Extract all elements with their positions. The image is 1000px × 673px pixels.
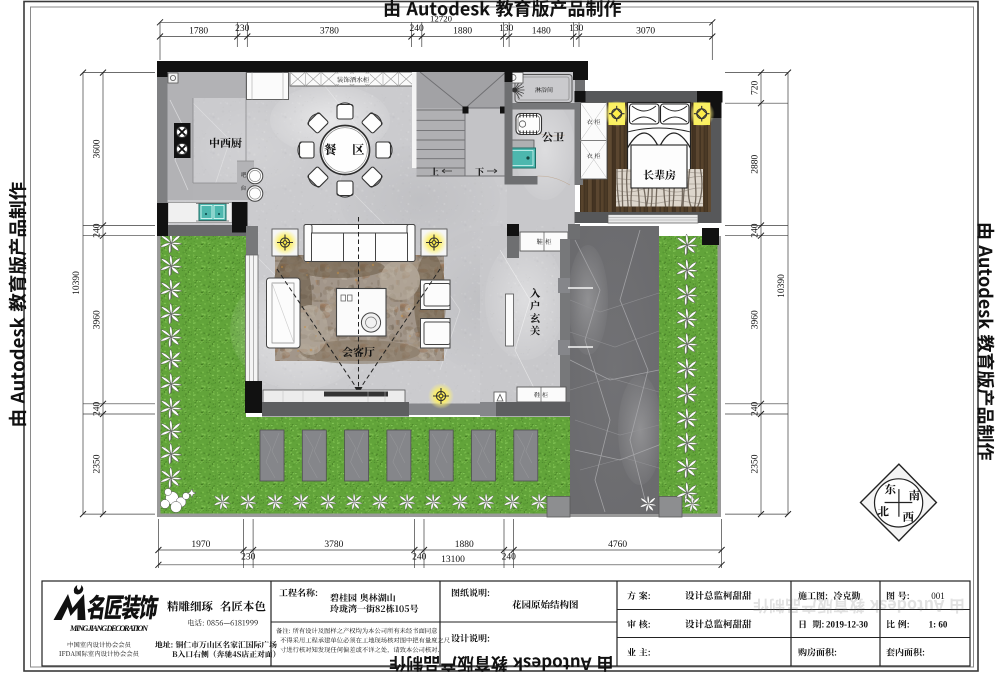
- svg-text:230: 230: [235, 24, 250, 34]
- svg-text:3960: 3960: [751, 310, 761, 329]
- svg-text:240: 240: [412, 553, 427, 563]
- svg-text:3780: 3780: [324, 540, 343, 550]
- svg-text:1480: 1480: [532, 27, 551, 37]
- svg-text:240: 240: [93, 402, 103, 417]
- svg-text:3780: 3780: [320, 27, 339, 37]
- svg-text:MING JIANG DECORATION: MING JIANG DECORATION: [69, 624, 149, 633]
- svg-text:240: 240: [751, 223, 761, 238]
- svg-text:3960: 3960: [93, 310, 103, 329]
- svg-text:130: 130: [499, 24, 514, 34]
- svg-text:3600: 3600: [93, 139, 103, 158]
- svg-text:2350: 2350: [93, 454, 103, 473]
- svg-text:001: 001: [931, 591, 945, 601]
- svg-text:1880: 1880: [455, 540, 474, 550]
- svg-text:1880: 1880: [453, 27, 472, 37]
- svg-text:230: 230: [241, 553, 256, 563]
- svg-text:130: 130: [569, 24, 584, 34]
- svg-text:13100: 13100: [441, 555, 465, 565]
- svg-text:720: 720: [751, 81, 761, 96]
- svg-text:10390: 10390: [72, 271, 82, 295]
- svg-text:1780: 1780: [189, 27, 208, 37]
- svg-text:240: 240: [502, 553, 517, 563]
- svg-text:240: 240: [93, 223, 103, 238]
- svg-text:2019-12-30: 2019-12-30: [826, 620, 868, 630]
- svg-text:1970: 1970: [191, 540, 210, 550]
- svg-text:10390: 10390: [777, 274, 787, 298]
- svg-text:4760: 4760: [608, 540, 627, 550]
- svg-text:3070: 3070: [636, 27, 655, 37]
- svg-text:2880: 2880: [751, 155, 761, 174]
- svg-text:240: 240: [751, 402, 761, 417]
- svg-text:1: 60: 1: 60: [929, 620, 948, 630]
- svg-text:240: 240: [409, 24, 424, 34]
- svg-text:2350: 2350: [751, 454, 761, 473]
